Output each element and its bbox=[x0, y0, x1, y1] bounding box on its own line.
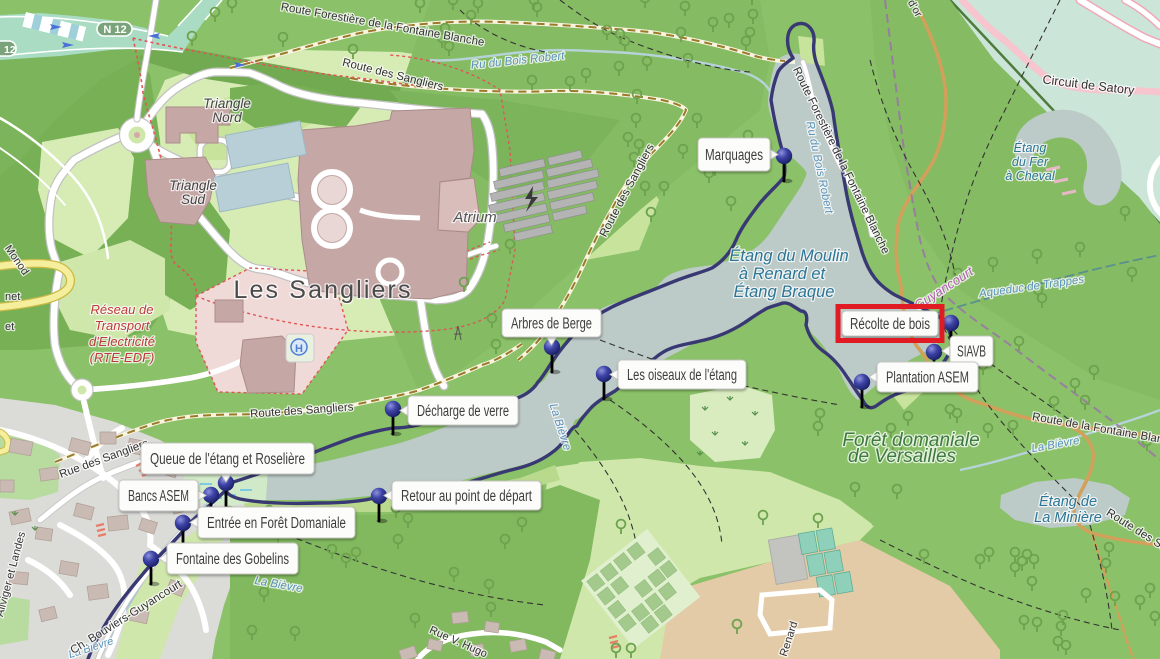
svg-text:à Renard et: à Renard et bbox=[739, 265, 827, 283]
svg-text:Triangle: Triangle bbox=[169, 178, 217, 193]
svg-text:du Fer: du Fer bbox=[1012, 155, 1049, 169]
svg-text:Bancs ASEM: Bancs ASEM bbox=[128, 488, 189, 505]
svg-text:Récolte de bois: Récolte de bois bbox=[850, 316, 930, 333]
svg-text:Décharge de verre: Décharge de verre bbox=[417, 403, 509, 420]
svg-text:net: net bbox=[5, 291, 20, 303]
svg-text:Retour au point de départ: Retour au point de départ bbox=[401, 488, 533, 505]
svg-text:de Versailles: de Versailles bbox=[848, 446, 957, 467]
svg-text:Étang de: Étang de bbox=[1039, 493, 1097, 510]
svg-text:12: 12 bbox=[4, 44, 16, 56]
svg-text:à Cheval: à Cheval bbox=[1005, 169, 1056, 183]
svg-text:Triangle: Triangle bbox=[203, 96, 251, 111]
svg-text:et: et bbox=[5, 321, 14, 333]
svg-text:Sud: Sud bbox=[181, 192, 206, 207]
svg-text:Marquages: Marquages bbox=[705, 147, 763, 164]
svg-text:Atrium: Atrium bbox=[452, 209, 496, 226]
svg-text:Les oiseaux de l'étang: Les oiseaux de l'étang bbox=[627, 367, 737, 384]
svg-text:N 12: N 12 bbox=[103, 24, 126, 36]
svg-text:Étang du Moulin: Étang du Moulin bbox=[729, 246, 848, 265]
svg-text:d'Electricité: d'Electricité bbox=[89, 334, 155, 349]
svg-text:La Minière: La Minière bbox=[1034, 510, 1102, 526]
svg-text:SIAVB: SIAVB bbox=[957, 344, 986, 361]
svg-text:Fontaine des Gobelins: Fontaine des Gobelins bbox=[176, 551, 289, 568]
svg-text:H: H bbox=[295, 343, 303, 355]
svg-text:(RTE-EDF): (RTE-EDF) bbox=[90, 350, 155, 365]
svg-text:Étang Braque: Étang Braque bbox=[734, 282, 835, 301]
svg-text:Plantation ASEM: Plantation ASEM bbox=[886, 370, 969, 387]
svg-text:Entrée en Forêt Domaniale: Entrée en Forêt Domaniale bbox=[207, 515, 346, 532]
svg-text:Étang: Étang bbox=[1014, 140, 1047, 155]
svg-text:Arbres de Berge: Arbres de Berge bbox=[511, 316, 592, 333]
svg-text:Nord: Nord bbox=[212, 110, 242, 125]
svg-text:Queue de l'étang et Roselière: Queue de l'étang et Roselière bbox=[150, 451, 305, 468]
svg-text:Réseau de: Réseau de bbox=[91, 302, 154, 317]
svg-text:Transport: Transport bbox=[95, 318, 151, 333]
